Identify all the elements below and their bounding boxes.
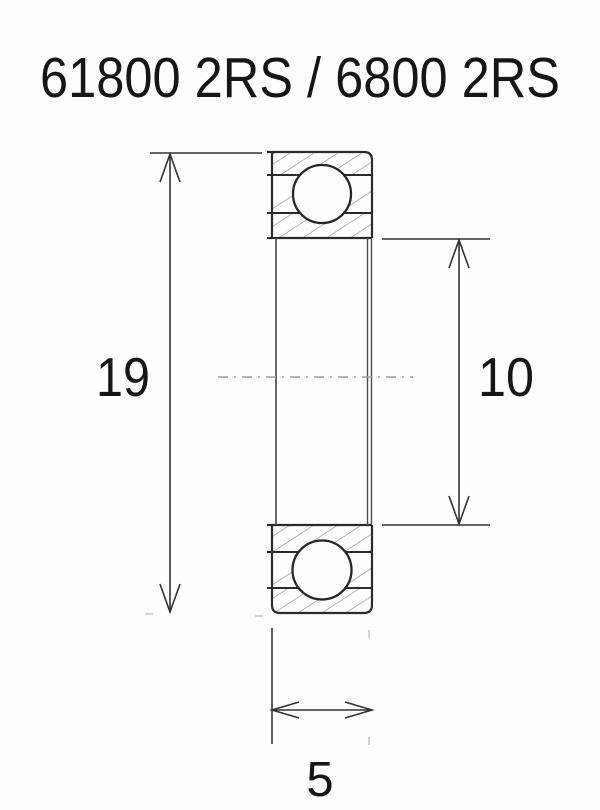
ball-top: [293, 165, 351, 223]
dimension-bore-diameter: [382, 239, 490, 525]
bearing-cross-section: [218, 152, 413, 613]
bearing-model-title: 61800 2RS / 6800 2RS: [40, 46, 560, 110]
faint-extension-ticks: [145, 614, 263, 616]
dimension-outer-diameter: [145, 153, 263, 616]
dimension-width: [272, 628, 372, 745]
dimension-label-width: 5: [306, 753, 333, 807]
dimension-label-bore-diameter: 10: [478, 346, 534, 408]
bore-walls: [276, 238, 372, 525]
ball-bottom: [293, 541, 352, 600]
dimension-label-outer-diameter: 19: [96, 346, 150, 408]
bearing-drawing-page: 61800 2RS / 6800 2RS: [0, 0, 600, 810]
bearing-technical-drawing: 61800 2RS / 6800 2RS: [0, 0, 600, 810]
